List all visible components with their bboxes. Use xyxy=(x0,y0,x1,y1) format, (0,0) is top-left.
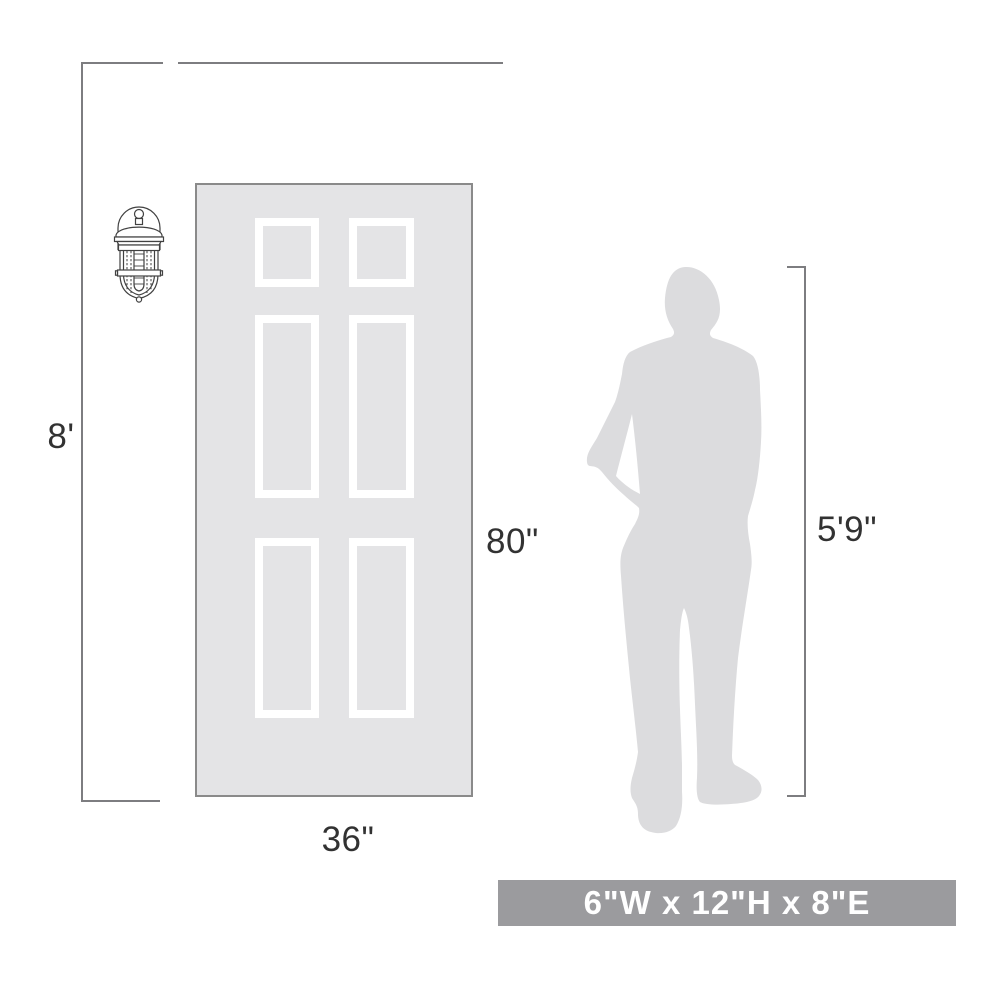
person-height-line xyxy=(804,266,806,797)
wall-height-top-tick xyxy=(81,62,163,64)
door-width-label: 36" xyxy=(310,820,386,860)
ceiling-line xyxy=(178,62,503,64)
door-panel xyxy=(349,218,414,287)
door-height-label: 80" xyxy=(486,522,539,562)
wall-height-bottom-tick xyxy=(81,800,160,802)
person-height-top-tick xyxy=(787,266,806,268)
size-comparison-diagram: 8' xyxy=(0,0,1000,1000)
person-height-label: 5'9" xyxy=(817,510,877,550)
door-panel xyxy=(349,315,414,498)
door-panel xyxy=(255,538,319,718)
door-panel xyxy=(255,315,319,498)
door-graphic xyxy=(195,183,473,797)
door-panel xyxy=(349,538,414,718)
door-panel xyxy=(255,218,319,287)
person-height-bottom-tick xyxy=(787,795,806,797)
person-silhouette xyxy=(585,258,770,838)
wall-sconce-icon xyxy=(110,204,168,304)
product-size-banner: 6"W x 12"H x 8"E xyxy=(498,880,956,926)
wall-height-label: 8' xyxy=(40,417,82,457)
product-size-text: 6"W x 12"H x 8"E xyxy=(584,884,871,922)
